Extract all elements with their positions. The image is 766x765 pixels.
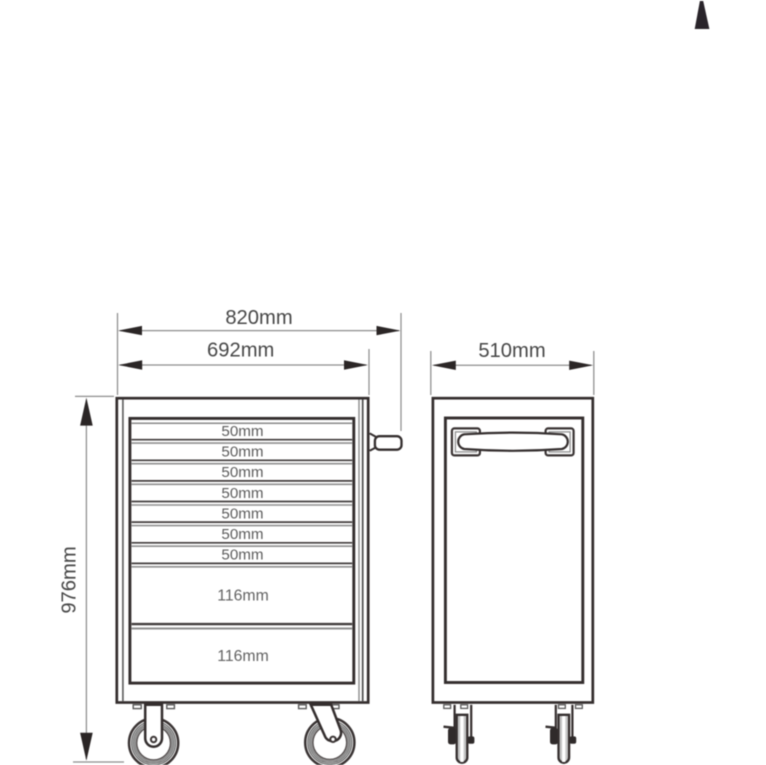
svg-text:116mm: 116mm <box>217 648 269 665</box>
svg-text:692mm: 692mm <box>207 340 274 362</box>
svg-text:50mm: 50mm <box>221 485 263 502</box>
svg-text:50mm: 50mm <box>221 423 263 440</box>
svg-text:116mm: 116mm <box>217 588 269 605</box>
svg-text:976mm: 976mm <box>58 546 80 613</box>
svg-text:820mm: 820mm <box>225 307 292 329</box>
svg-text:50mm: 50mm <box>221 464 263 481</box>
svg-text:50mm: 50mm <box>221 444 263 461</box>
svg-text:510mm: 510mm <box>478 340 545 362</box>
svg-text:50mm: 50mm <box>221 547 263 564</box>
svg-text:50mm: 50mm <box>221 506 263 523</box>
svg-text:50mm: 50mm <box>221 526 263 543</box>
